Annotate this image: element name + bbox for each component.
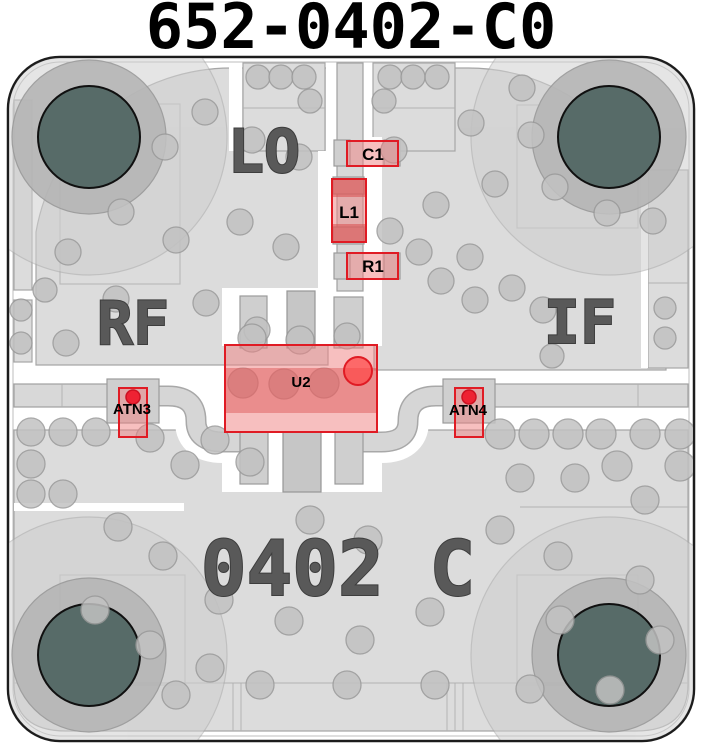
via <box>553 419 583 449</box>
board-title: 652-0402-C0 <box>146 0 557 63</box>
via <box>162 681 190 709</box>
component-refdes: ATN3 <box>113 401 151 418</box>
via <box>10 299 32 321</box>
via <box>192 99 218 125</box>
via <box>542 174 568 200</box>
component-atn3[interactable]: ATN3 <box>113 388 151 437</box>
via <box>227 209 253 235</box>
via <box>55 239 81 265</box>
via <box>654 297 676 319</box>
via <box>482 171 508 197</box>
component-refdes: C1 <box>362 145 384 164</box>
if-trace-strip <box>484 384 688 407</box>
via <box>33 278 57 302</box>
via <box>596 676 624 704</box>
pin1-marker <box>344 357 372 385</box>
via <box>372 89 396 113</box>
via <box>152 134 178 160</box>
via <box>53 330 79 356</box>
via <box>377 218 403 244</box>
via <box>586 419 616 449</box>
via <box>421 671 449 699</box>
pcb-viewer: 652-0402-C0 <box>0 0 702 747</box>
via <box>516 675 544 703</box>
rf-trace-strip <box>14 384 118 407</box>
component-refdes: ATN4 <box>449 402 488 419</box>
via <box>298 89 322 113</box>
component-c1[interactable]: C1 <box>347 141 398 166</box>
via <box>561 464 589 492</box>
u2-bottom-pad <box>335 432 363 484</box>
via <box>506 464 534 492</box>
via <box>82 418 110 446</box>
via <box>273 234 299 260</box>
via <box>269 65 293 89</box>
via <box>333 671 361 699</box>
via <box>193 290 219 316</box>
via <box>518 122 544 148</box>
via <box>544 542 572 570</box>
via <box>17 450 45 478</box>
component-u2[interactable]: U2 <box>225 345 377 432</box>
via <box>171 451 199 479</box>
via <box>401 65 425 89</box>
via <box>509 75 535 101</box>
component-refdes: U2 <box>291 374 310 391</box>
via <box>499 275 525 301</box>
silkscreen-port-rf: RF <box>97 289 169 359</box>
via <box>485 419 515 449</box>
via <box>640 208 666 234</box>
via <box>631 486 659 514</box>
via <box>630 419 660 449</box>
via <box>594 200 620 226</box>
via <box>346 626 374 654</box>
via <box>425 65 449 89</box>
component-atn4[interactable]: ATN4 <box>449 388 488 437</box>
component-terminal-band <box>333 180 365 197</box>
component-l1[interactable]: L1 <box>332 179 366 242</box>
via <box>646 626 674 654</box>
via <box>665 419 695 449</box>
via <box>378 65 402 89</box>
via <box>519 419 549 449</box>
via <box>665 451 695 481</box>
via <box>17 480 45 508</box>
mounting-hole-drill <box>38 86 140 188</box>
via <box>292 65 316 89</box>
via <box>246 65 270 89</box>
mounting-hole-drill <box>558 86 660 188</box>
via <box>423 192 449 218</box>
via <box>458 110 484 136</box>
silkscreen-board-code: 0402 C <box>201 524 476 613</box>
via <box>49 418 77 446</box>
component-terminal-band <box>333 224 365 241</box>
via <box>246 671 274 699</box>
via <box>626 566 654 594</box>
via <box>546 606 574 634</box>
via <box>457 244 483 270</box>
via <box>428 268 454 294</box>
via <box>136 631 164 659</box>
via <box>49 480 77 508</box>
via <box>654 327 676 349</box>
via <box>406 239 432 265</box>
component-refdes: L1 <box>339 203 359 222</box>
via <box>104 513 132 541</box>
via <box>149 542 177 570</box>
via <box>196 654 224 682</box>
component-r1[interactable]: R1 <box>347 253 398 279</box>
via <box>163 227 189 253</box>
component-refdes: R1 <box>362 257 384 276</box>
via <box>81 596 109 624</box>
via <box>108 199 134 225</box>
silkscreen-port-if: IF <box>544 288 616 358</box>
pcb-layout-canvas: 652-0402-C0 <box>0 0 702 747</box>
silkscreen-port-lo: LO <box>228 117 300 187</box>
u2-bottom-pad <box>283 432 321 492</box>
via <box>10 332 32 354</box>
via <box>236 448 264 476</box>
via <box>462 287 488 313</box>
via <box>486 516 514 544</box>
via <box>602 451 632 481</box>
via <box>17 418 45 446</box>
